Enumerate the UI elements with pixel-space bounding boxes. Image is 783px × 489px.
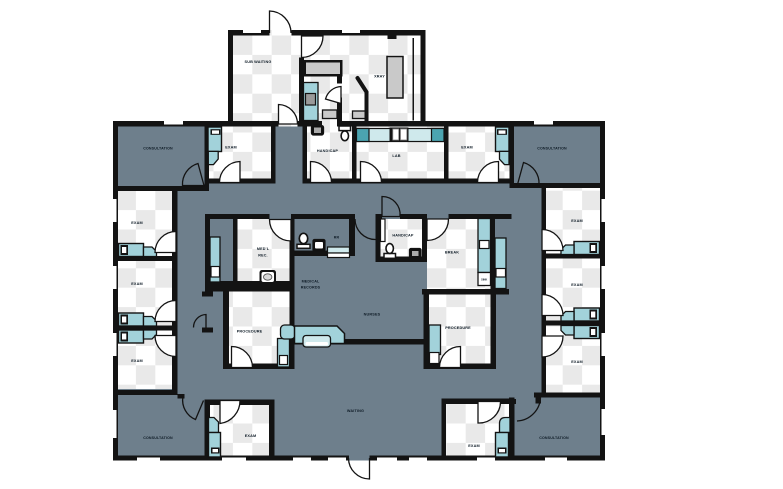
svg-text:NURSES: NURSES [364, 313, 381, 317]
svg-text:CONSULTATION: CONSULTATION [537, 147, 567, 151]
svg-text:LAB: LAB [392, 154, 400, 158]
svg-text:EXAM: EXAM [571, 219, 583, 223]
svg-text:EXAM: EXAM [245, 434, 257, 438]
svg-text:EXAM: EXAM [571, 360, 583, 364]
svg-text:RECORDS: RECORDS [301, 286, 321, 290]
svg-text:XRAY: XRAY [374, 75, 385, 79]
svg-text:MED’L: MED’L [257, 247, 270, 251]
svg-text:WAITING: WAITING [347, 409, 364, 413]
svg-text:SINK: SINK [481, 278, 487, 282]
svg-text:HANDICAP: HANDICAP [317, 149, 339, 153]
svg-text:EXAM: EXAM [468, 444, 480, 448]
svg-text:RR: RR [334, 236, 340, 240]
svg-text:REC.: REC. [258, 254, 267, 258]
svg-text:CONSULTATION: CONSULTATION [143, 436, 173, 440]
svg-text:EXAM: EXAM [225, 146, 237, 150]
svg-text:EXAM: EXAM [131, 221, 143, 225]
svg-text:CONSULTATION: CONSULTATION [143, 147, 173, 151]
svg-text:EXAM: EXAM [571, 283, 583, 287]
svg-text:BREAK: BREAK [445, 251, 459, 255]
svg-text:EXAM: EXAM [131, 359, 143, 363]
svg-text:HANDICAP: HANDICAP [392, 234, 414, 238]
svg-text:PROCEDURE: PROCEDURE [445, 326, 471, 330]
svg-text:PROCEDURE: PROCEDURE [237, 330, 263, 334]
svg-text:SUB WAITING: SUB WAITING [245, 60, 272, 64]
svg-text:CONSULTATION: CONSULTATION [539, 436, 569, 440]
svg-text:EXAM: EXAM [131, 282, 143, 286]
svg-text:EXAM: EXAM [461, 146, 473, 150]
svg-text:MEDICAL: MEDICAL [302, 280, 320, 284]
